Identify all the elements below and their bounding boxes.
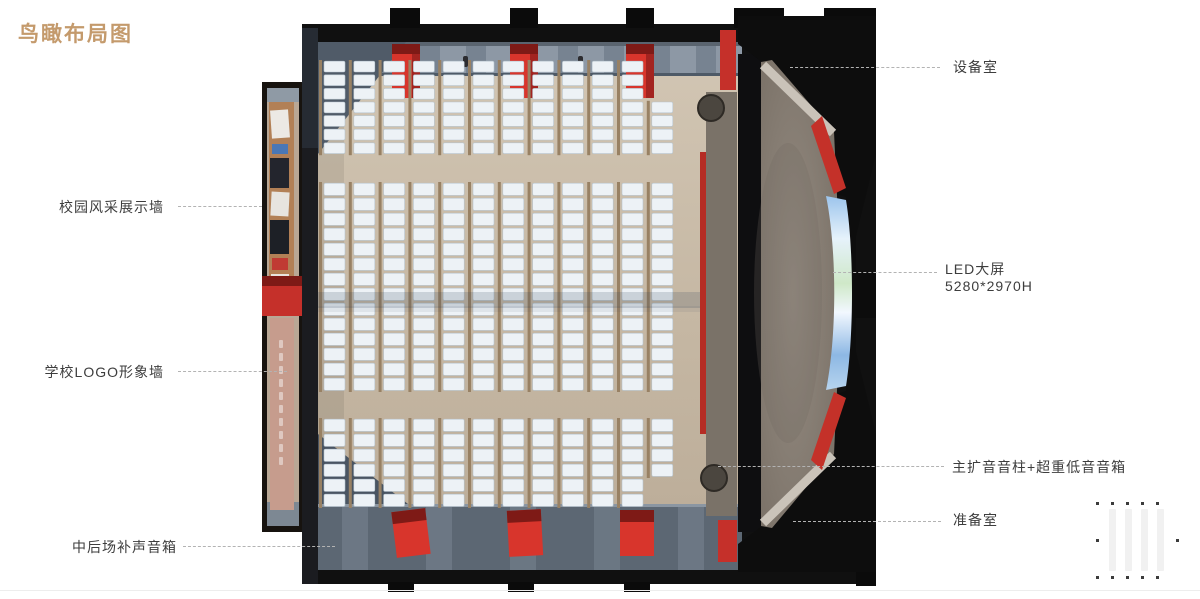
auditorium-svg [258, 4, 883, 594]
campus-display-wall [269, 102, 294, 302]
page-title: 鸟瞰布局图 [18, 18, 133, 48]
selection-handle[interactable] [1156, 576, 1159, 579]
sound-column-bottom [701, 465, 727, 491]
label-led-screen: LED大屏 5280*2970H [945, 261, 1033, 295]
page-foot-line [0, 590, 1200, 591]
watermark-ghost-bar [1125, 509, 1132, 571]
corridor-red-pillar [262, 276, 304, 316]
selection-handle[interactable] [1126, 502, 1129, 505]
stage-left-top-red-wall [720, 30, 736, 90]
sound-column-top [698, 95, 724, 121]
label-led-screen-size: 5280*2970H [945, 278, 1033, 295]
selection-handle[interactable] [1096, 502, 1099, 505]
leader-equipment-room [790, 67, 940, 68]
label-led-screen-name: LED大屏 [945, 261, 1033, 278]
leader-logo-wall [178, 371, 287, 372]
selection-handle[interactable] [1111, 502, 1114, 505]
leader-rear-speakers [183, 546, 335, 547]
selection-handle[interactable] [1156, 502, 1159, 505]
label-rear-speakers: 中后场补声音箱 [0, 539, 177, 556]
label-equipment-room: 设备室 [953, 59, 998, 76]
stage-red-trim [700, 152, 706, 434]
stage-left-bottom-red-wall [718, 520, 737, 562]
label-campus-wall: 校园风采展示墙 [0, 199, 164, 216]
selection-handle[interactable] [1141, 576, 1144, 579]
watermark-ghost-bar [1109, 509, 1116, 571]
selection-handle[interactable] [1096, 576, 1099, 579]
selection-handle[interactable] [1096, 539, 1099, 542]
right-wall-block [854, 272, 876, 318]
selection-handle[interactable] [1176, 539, 1179, 542]
label-prep-room: 准备室 [953, 512, 998, 529]
label-main-speakers: 主扩音音柱+超重低音音箱 [952, 459, 1126, 476]
left-corridor [262, 82, 304, 532]
watermark-selection[interactable] [1097, 503, 1177, 577]
auditorium-render [258, 4, 883, 594]
watermark-ghost-bar [1157, 509, 1164, 571]
leader-led-screen [833, 272, 937, 273]
leader-prep-room [793, 521, 941, 522]
label-logo-wall: 学校LOGO形象墙 [0, 364, 164, 381]
leader-campus-wall [178, 206, 262, 207]
school-logo-wall [270, 318, 294, 510]
leader-main-speakers [718, 466, 944, 467]
watermark-ghost-bar [1141, 509, 1148, 571]
selection-handle[interactable] [1111, 576, 1114, 579]
stage [698, 16, 876, 572]
selection-handle[interactable] [1126, 576, 1129, 579]
selection-handle[interactable] [1141, 502, 1144, 505]
